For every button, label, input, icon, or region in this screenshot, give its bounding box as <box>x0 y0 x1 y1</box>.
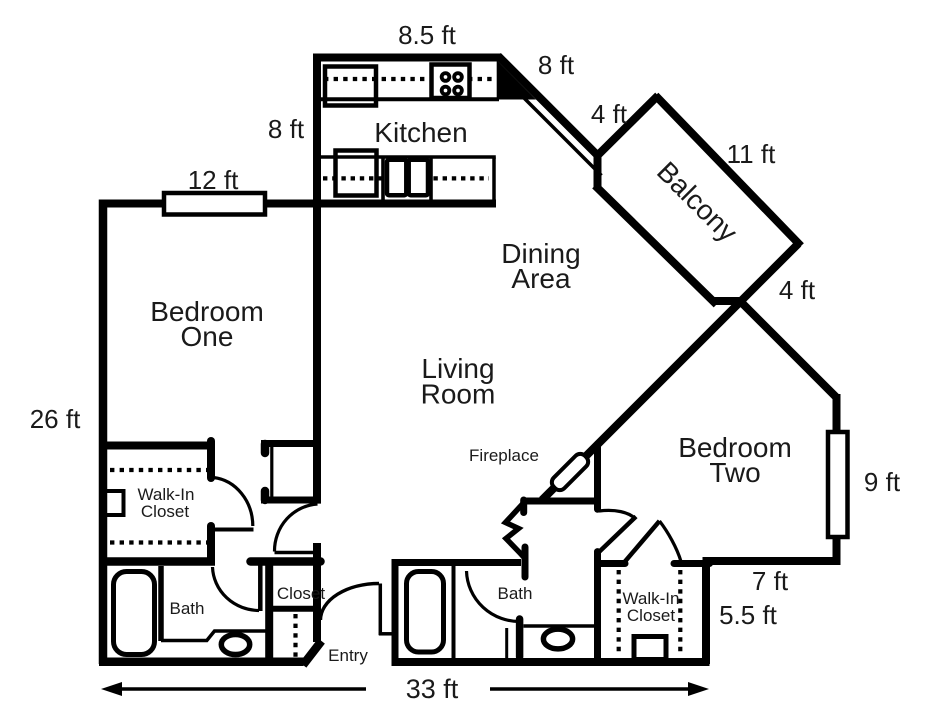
svg-text:4 ft: 4 ft <box>591 99 628 129</box>
svg-text:Room: Room <box>421 379 496 410</box>
svg-text:7 ft: 7 ft <box>752 566 789 596</box>
svg-text:8 ft: 8 ft <box>538 50 575 80</box>
svg-text:Closet: Closet <box>277 584 325 603</box>
svg-text:Two: Two <box>709 457 760 488</box>
svg-text:Closet: Closet <box>141 502 189 521</box>
svg-text:One: One <box>181 321 234 352</box>
svg-text:11 ft: 11 ft <box>727 139 776 169</box>
svg-text:4 ft: 4 ft <box>779 275 816 305</box>
svg-text:Bath: Bath <box>498 584 533 603</box>
svg-text:8 ft: 8 ft <box>268 114 305 144</box>
svg-text:Closet: Closet <box>627 606 675 625</box>
svg-text:8.5 ft: 8.5 ft <box>398 20 457 50</box>
svg-text:Bath: Bath <box>170 599 205 618</box>
svg-text:Kitchen: Kitchen <box>374 117 467 148</box>
svg-text:5.5 ft: 5.5 ft <box>719 600 778 630</box>
svg-text:Fireplace: Fireplace <box>469 446 539 465</box>
svg-text:Entry: Entry <box>328 646 368 665</box>
svg-text:26 ft: 26 ft <box>30 404 81 434</box>
svg-text:9 ft: 9 ft <box>864 467 901 497</box>
svg-text:Area: Area <box>511 263 571 294</box>
svg-text:12 ft: 12 ft <box>188 165 239 195</box>
svg-text:33 ft: 33 ft <box>406 674 459 704</box>
